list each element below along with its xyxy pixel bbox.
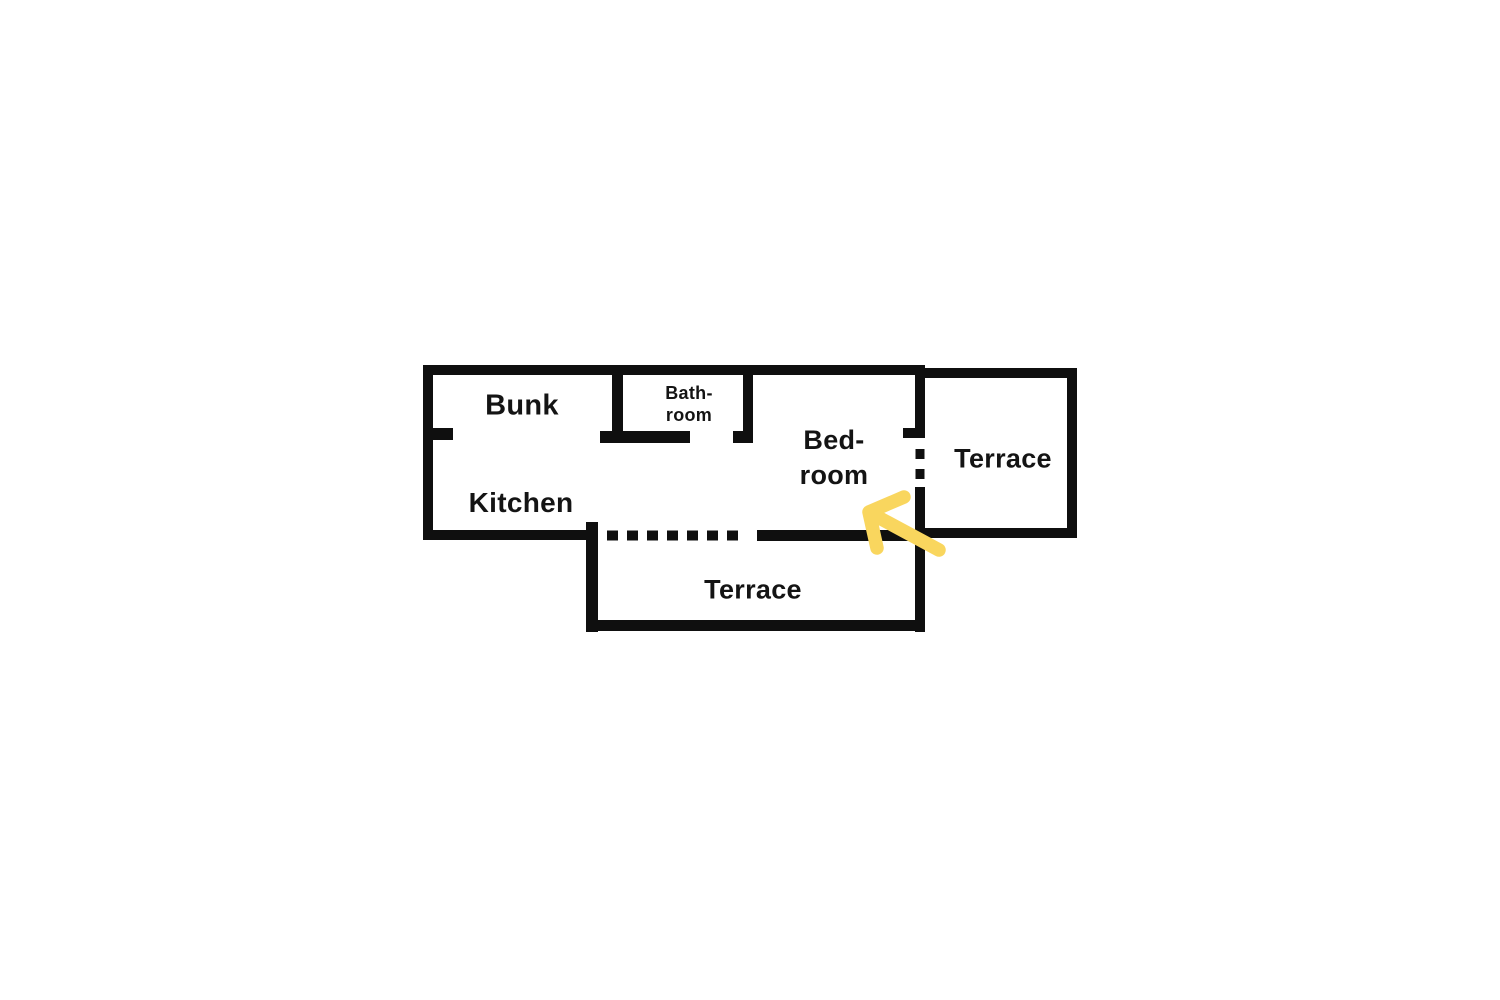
- room-label-terrace-right: Terrace: [954, 444, 1052, 475]
- room-label-bedroom: Bed- room: [800, 423, 869, 493]
- wall-terrace-right-top: [925, 368, 1077, 378]
- bedroom-label-line1: Bed-: [800, 423, 869, 458]
- room-label-bathroom: Bath- room: [665, 382, 713, 426]
- floor-plan: Bunk Bath- room Bed- room Kitchen Terrac…: [0, 0, 1500, 1000]
- wall-main-top: [423, 365, 925, 375]
- wall-terrace-bottom-bottom: [586, 620, 925, 631]
- room-label-terrace-bottom: Terrace: [704, 575, 802, 606]
- bedroom-label-line2: room: [800, 458, 869, 493]
- floor-plan-walls: [0, 0, 1500, 1000]
- wall-main-right-lower: [915, 487, 925, 632]
- wall-main-bottom-kitchen: [423, 530, 598, 540]
- wall-bathroom-bottom-left: [600, 431, 690, 443]
- wall-terrace-bottom-left: [586, 522, 598, 632]
- bathroom-label-line2: room: [665, 404, 713, 426]
- bathroom-label-line1: Bath-: [665, 382, 713, 404]
- terrace-bottom-label-text: Terrace: [704, 575, 802, 605]
- wall-terrace-right-bottom: [925, 528, 1077, 538]
- wall-left-stub: [433, 428, 453, 440]
- bunk-label-text: Bunk: [485, 390, 559, 422]
- terrace-right-label-text: Terrace: [954, 444, 1052, 474]
- wall-main-right-door-cap: [903, 428, 925, 438]
- wall-terrace-right-right: [1067, 368, 1077, 538]
- wall-main-right-upper: [915, 365, 925, 438]
- kitchen-label-text: Kitchen: [469, 487, 574, 518]
- room-label-kitchen: Kitchen: [469, 487, 574, 519]
- room-label-bunk: Bunk: [485, 390, 559, 423]
- wall-main-left: [423, 365, 433, 540]
- highlight-arrow-icon: [869, 497, 939, 550]
- wall-bathroom-bottom-right: [733, 431, 753, 443]
